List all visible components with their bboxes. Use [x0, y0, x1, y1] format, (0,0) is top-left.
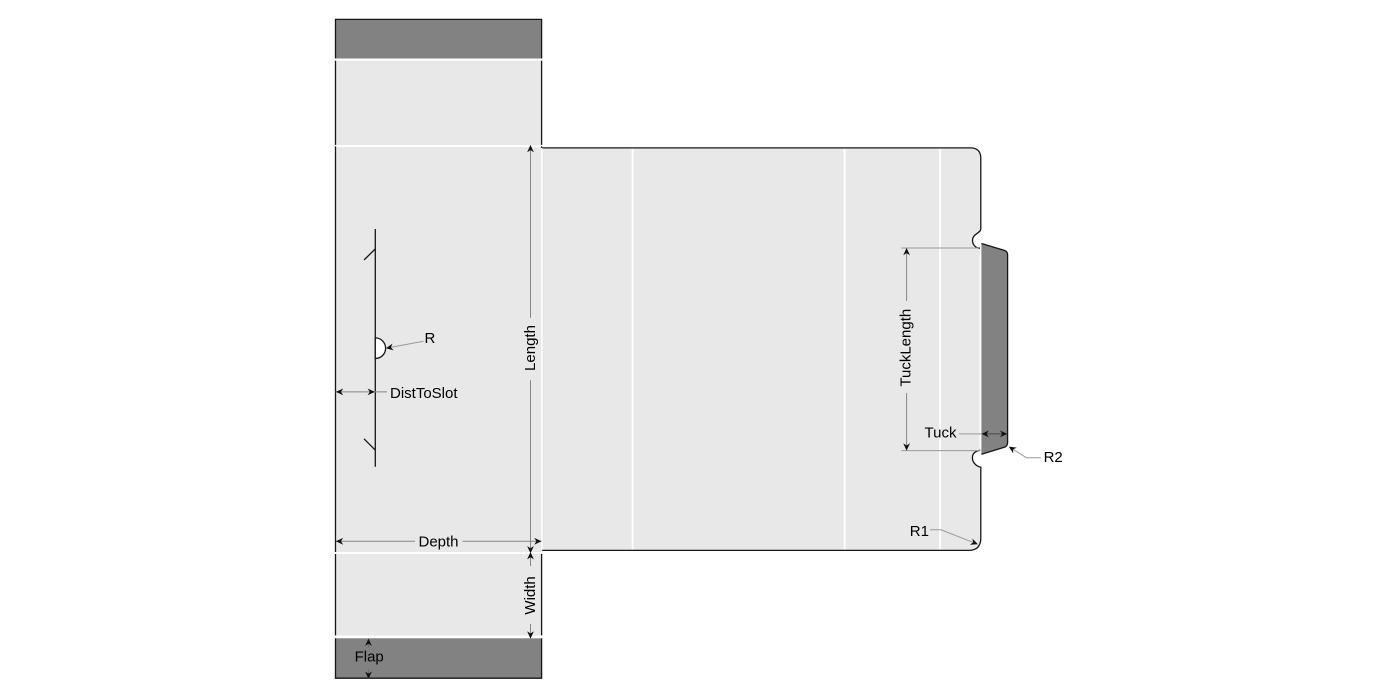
svg-text:R2: R2 — [1044, 449, 1063, 466]
svg-text:R: R — [425, 330, 436, 347]
svg-text:Tuck: Tuck — [925, 425, 957, 442]
svg-text:Width: Width — [522, 576, 539, 614]
svg-text:DistToSlot: DistToSlot — [390, 385, 458, 402]
svg-text:Depth: Depth — [418, 533, 458, 550]
svg-text:TuckLength: TuckLength — [897, 309, 914, 387]
svg-text:Flap: Flap — [355, 649, 384, 666]
svg-text:R1: R1 — [910, 523, 929, 540]
svg-text:Length: Length — [522, 325, 539, 371]
